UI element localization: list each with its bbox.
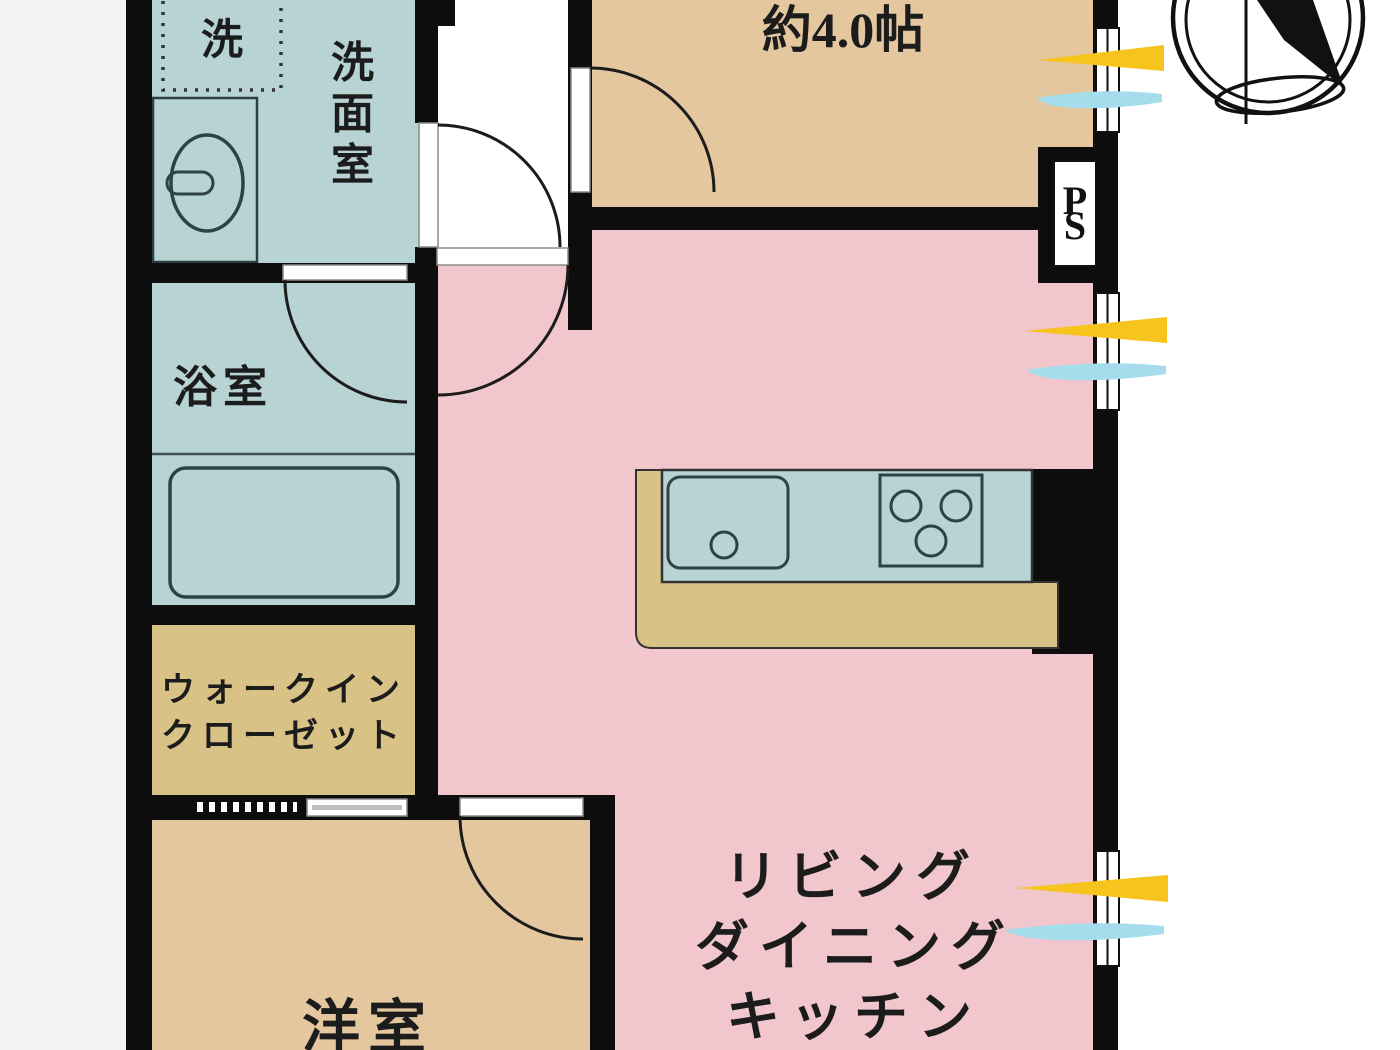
wall-bathroom-closet [126,605,438,625]
walk-in-closet-floor [152,625,415,795]
pipe-space-label: P S [1054,161,1096,266]
floor-plan-drawing [0,0,1400,1050]
washroom-floor [152,0,438,263]
page-margin-left [0,0,126,1050]
window-symbol [1096,293,1119,410]
wall-western-room-ldk [590,795,615,1050]
pipe-space-label-bottom: S [1064,214,1086,239]
walk-in-closet-label-line2: クローゼット [161,720,407,754]
washer-space-label: 洗 [201,20,243,62]
ldk-label-line1: リビング [724,850,980,904]
small-room-door-leaf [571,68,590,192]
closet-sliding-door-track [312,805,402,810]
small-room-label: 約4.0帖 [762,5,925,55]
ldk-label-line2: ダイニング [695,920,1015,974]
washroom-door-leaf [419,123,438,247]
hallway-floor [438,0,568,248]
washroom-label: 洗面室 [327,40,370,193]
walk-in-closet-label-line1: ウォークイン [161,674,407,708]
wall-small-room-ldk [568,207,1040,230]
wall-outer-left [126,0,152,1050]
bathroom-floor [152,283,415,605]
ldk-floor-upper [592,230,1093,270]
western-room-label: 洋室 [302,999,434,1050]
window-symbol [1096,28,1119,132]
window-symbol [1096,851,1119,966]
wall-hall-washroom [415,0,438,123]
ldk-door-leaf [437,248,568,265]
bathroom-label: 浴室 [173,366,273,410]
western-room-door-leaf [460,798,583,816]
bathroom-door-leaf [283,265,407,280]
ldk-label-line3: キッチン [726,990,982,1044]
wall-left-rooms-ldk [415,247,438,800]
floor-plan-page: 洗 洗面室 浴室 ウォークイン クローゼット 洋室 約4.0帖 リビング ダイニ… [0,0,1400,1050]
